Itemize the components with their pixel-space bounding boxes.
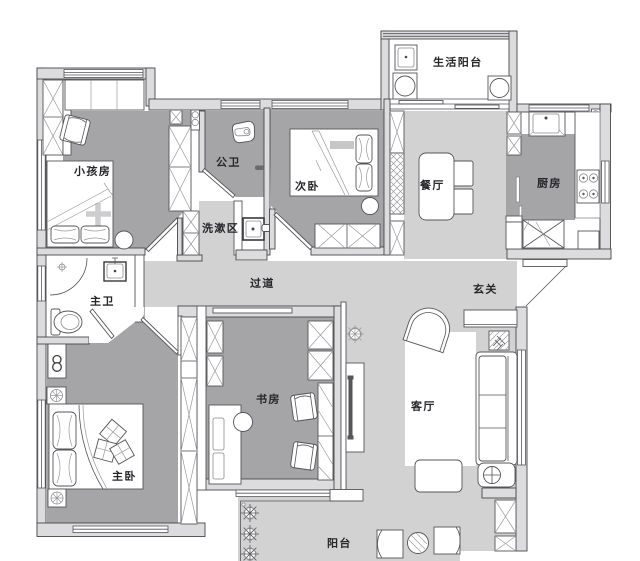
svg-text:次卧: 次卧 bbox=[295, 180, 320, 193]
svg-text:小孩房: 小孩房 bbox=[73, 165, 111, 178]
svg-text:阳台: 阳台 bbox=[327, 537, 352, 550]
svg-text:主卧: 主卧 bbox=[112, 470, 137, 483]
svg-text:餐厅: 餐厅 bbox=[419, 179, 445, 192]
svg-text:客厅: 客厅 bbox=[410, 400, 436, 413]
svg-text:公卫: 公卫 bbox=[216, 156, 241, 169]
svg-text:洗漱区: 洗漱区 bbox=[202, 222, 239, 235]
svg-text:书房: 书房 bbox=[256, 393, 281, 406]
svg-text:玄关: 玄关 bbox=[473, 283, 498, 296]
svg-text:生活阳台: 生活阳台 bbox=[433, 56, 483, 69]
svg-text:过道: 过道 bbox=[250, 277, 275, 290]
svg-text:主卫: 主卫 bbox=[90, 295, 115, 308]
svg-text:厨房: 厨房 bbox=[537, 177, 562, 190]
